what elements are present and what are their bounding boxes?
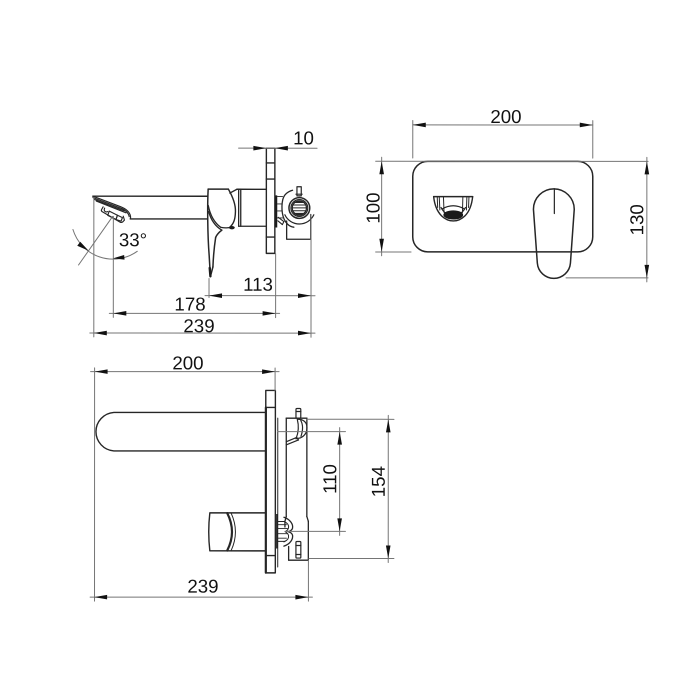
svg-text:33°: 33°	[119, 229, 147, 250]
svg-text:178: 178	[174, 293, 205, 314]
svg-text:239: 239	[187, 576, 218, 597]
svg-text:154: 154	[368, 466, 389, 497]
svg-text:10: 10	[293, 127, 314, 148]
svg-text:239: 239	[183, 315, 214, 336]
svg-text:200: 200	[172, 352, 203, 373]
svg-text:113: 113	[243, 274, 273, 295]
svg-text:100: 100	[362, 192, 383, 223]
svg-text:130: 130	[626, 204, 647, 235]
svg-text:110: 110	[319, 464, 340, 494]
svg-text:200: 200	[490, 106, 521, 127]
